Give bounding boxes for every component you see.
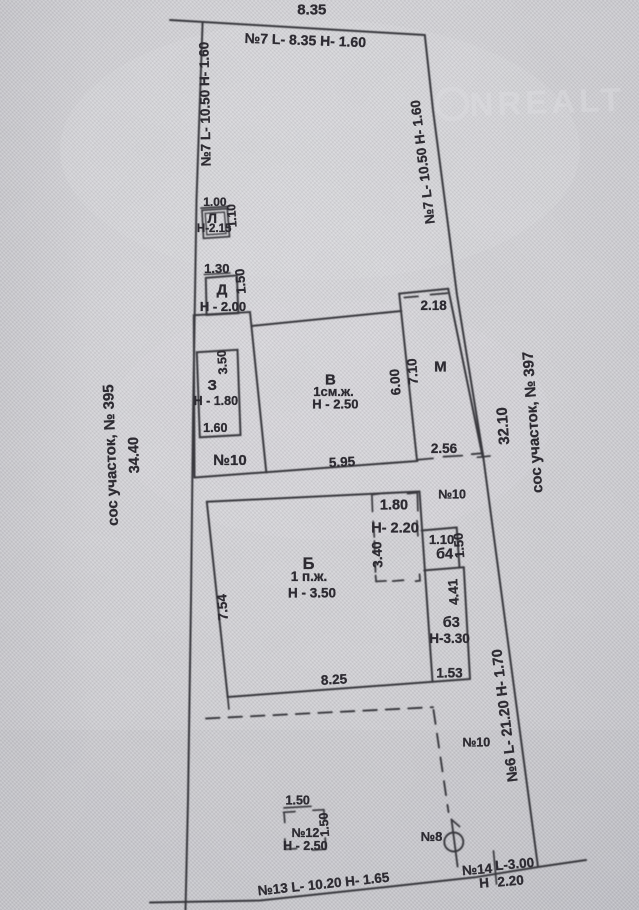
svg-text:1.50: 1.50 <box>232 268 249 294</box>
svg-text:1.53: 1.53 <box>436 666 463 681</box>
svg-text:Н - 3.50: Н - 3.50 <box>288 586 336 601</box>
svg-text:1.50: 1.50 <box>316 812 332 837</box>
svg-text:4.41: 4.41 <box>445 578 462 606</box>
svg-text:Н - 2.50: Н - 2.50 <box>312 397 358 412</box>
svg-text:NREALT: NREALT <box>469 81 626 123</box>
svg-text:Н - 1.80: Н - 1.80 <box>194 394 239 408</box>
svg-text:№8: №8 <box>421 829 443 844</box>
svg-text:8.25: 8.25 <box>321 671 349 687</box>
svg-text:1 п.ж.: 1 п.ж. <box>291 569 328 584</box>
svg-text:1.60: 1.60 <box>203 421 227 435</box>
svg-text:Н-3.30: Н-3.30 <box>429 631 470 646</box>
svg-text:Н - 2.00: Н - 2.00 <box>200 299 246 314</box>
svg-text:З: З <box>207 377 216 394</box>
svg-text:№7 L- 10.50 Н- 1.60: №7 L- 10.50 Н- 1.60 <box>196 42 213 167</box>
svg-text:1.10: 1.10 <box>224 203 240 228</box>
svg-text:1.50: 1.50 <box>286 794 310 808</box>
svg-text:1.30: 1.30 <box>204 261 229 276</box>
svg-text:3.40: 3.40 <box>369 541 385 568</box>
svg-text:М: М <box>434 359 447 376</box>
svg-text:2.18: 2.18 <box>420 298 447 313</box>
svg-text:№10: №10 <box>438 488 466 502</box>
svg-text:№12: №12 <box>291 826 319 840</box>
svg-text:7.10: 7.10 <box>404 358 421 385</box>
svg-text:3.50: 3.50 <box>215 350 231 375</box>
svg-text:32.10: 32.10 <box>494 407 514 446</box>
svg-text:б3: б3 <box>443 615 460 631</box>
svg-text:1.50: 1.50 <box>451 532 468 558</box>
svg-text:7.54: 7.54 <box>214 593 231 621</box>
svg-text:Н- 2.20: Н- 2.20 <box>371 521 419 537</box>
svg-text:6.00: 6.00 <box>387 368 404 395</box>
svg-text:№10: №10 <box>462 736 490 750</box>
svg-text:1.80: 1.80 <box>380 498 408 514</box>
svg-text:№14: №14 <box>461 861 493 879</box>
svg-text:Н - 2.50: Н - 2.50 <box>283 839 328 853</box>
svg-text:34.40: 34.40 <box>126 437 143 474</box>
svg-text:Н: Н <box>479 875 490 891</box>
svg-text:5.95: 5.95 <box>329 454 357 470</box>
svg-text:2.20: 2.20 <box>497 872 524 889</box>
svg-text:8.35: 8.35 <box>297 2 326 19</box>
svg-text:2.56: 2.56 <box>431 441 458 456</box>
svg-text:Д: Д <box>217 282 228 299</box>
svg-text:б4: б4 <box>436 547 453 563</box>
svg-text:№10: №10 <box>213 452 246 469</box>
